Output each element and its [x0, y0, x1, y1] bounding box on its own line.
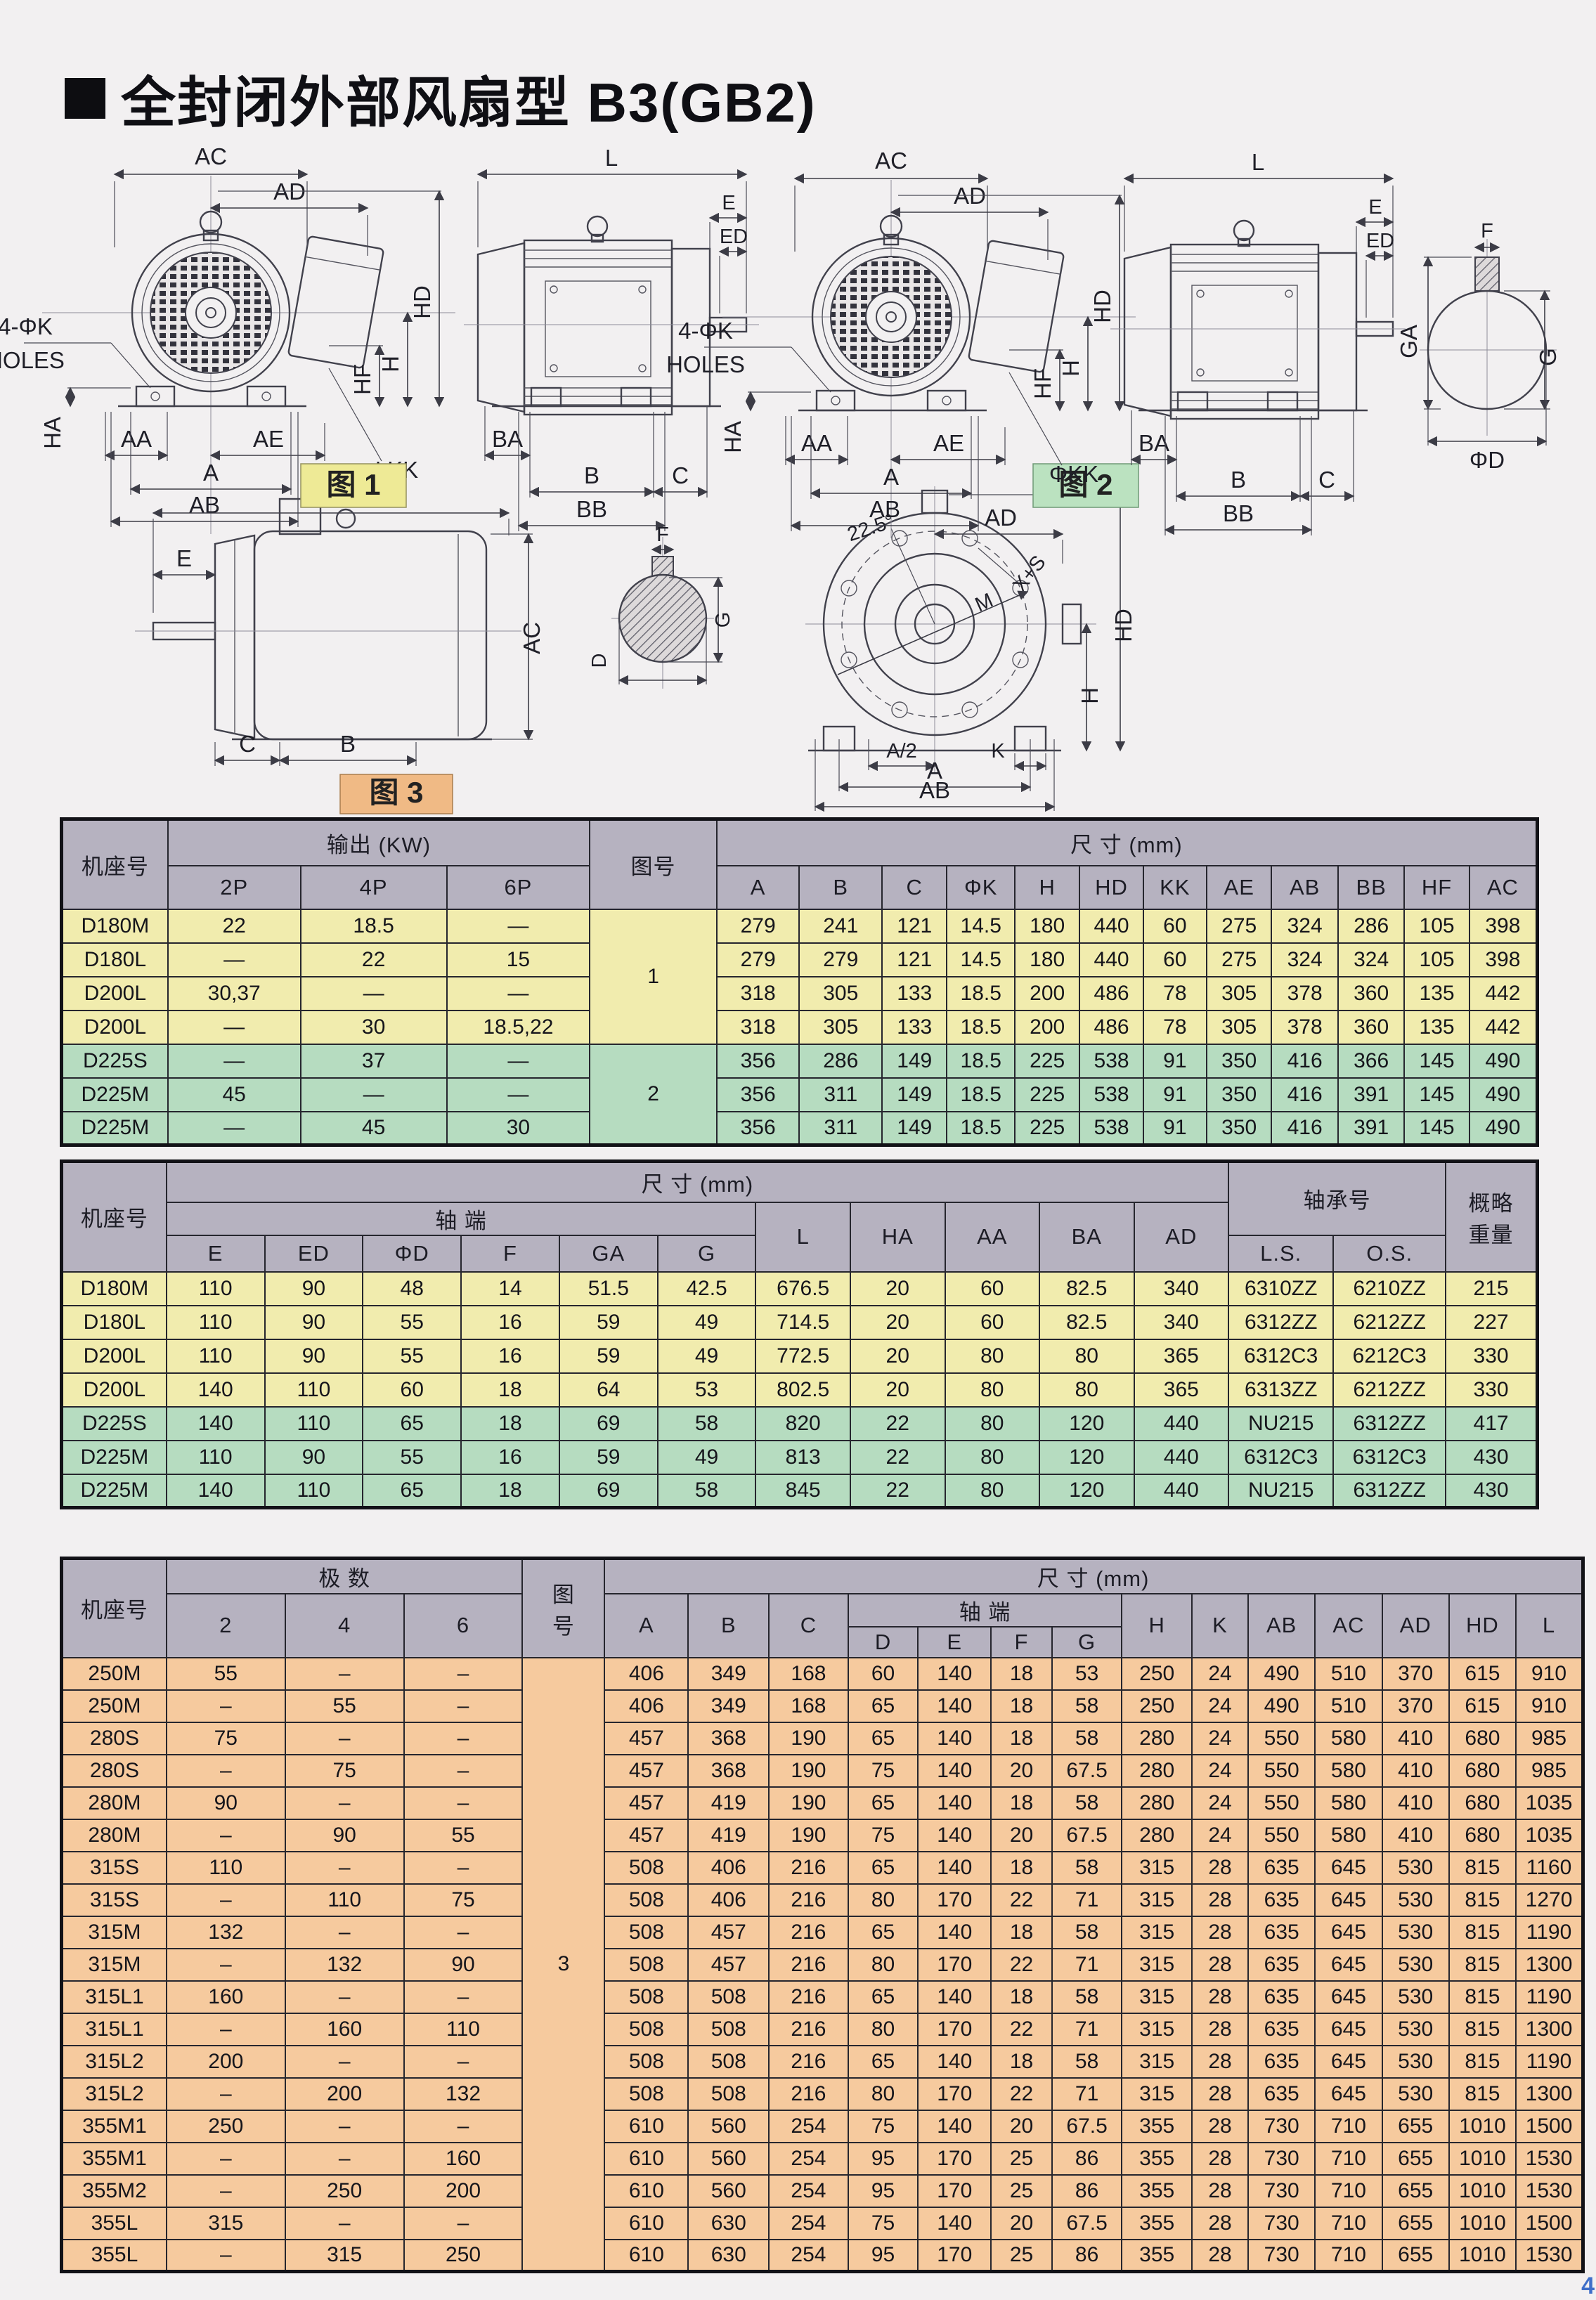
value-cell: 410: [1382, 1755, 1449, 1787]
table-row: 280S75––45736819065140185828024550580410…: [62, 1722, 1583, 1755]
model-cell: 280M: [62, 1819, 167, 1852]
dim-label: ΦD: [1470, 447, 1505, 473]
figure-3-key-detail: F G D: [588, 524, 734, 689]
value-cell: –: [404, 1722, 523, 1755]
dim-label: AC: [195, 143, 227, 169]
value-cell: 78: [1143, 1011, 1207, 1044]
table-row: D225M140110651869588452280120440NU215631…: [62, 1474, 1538, 1508]
value-cell: 457: [604, 1819, 688, 1852]
value-cell: 18.5: [301, 909, 447, 943]
value-cell: 280: [1122, 1755, 1192, 1787]
dim-label: HA: [720, 421, 746, 453]
dim-label: AA: [801, 430, 832, 456]
value-cell: 69: [559, 1407, 658, 1441]
drawing-primitive: [1285, 369, 1292, 376]
value-cell: 645: [1315, 2078, 1382, 2110]
value-cell: 286: [1338, 909, 1404, 943]
value-cell: 486: [1079, 977, 1143, 1011]
value-cell: 55: [404, 1819, 523, 1852]
value-cell: 121: [882, 909, 947, 943]
model-cell: 315L2: [62, 2078, 167, 2110]
value-cell: 60: [363, 1373, 461, 1407]
value-cell: 378: [1271, 977, 1337, 1011]
value-cell: 530: [1382, 1949, 1449, 1981]
value-cell: 350: [1207, 1112, 1271, 1145]
value-cell: 815: [1449, 1981, 1516, 2013]
table-row: 315L2–2001325085082168017022713152863564…: [62, 2078, 1583, 2110]
value-cell: 80: [848, 2078, 919, 2110]
value-cell: 550: [1248, 1819, 1315, 1852]
value-cell: 110: [285, 1884, 404, 1916]
value-cell: 121: [882, 943, 947, 977]
value-cell: –: [285, 1722, 404, 1755]
dim-label: HF: [349, 364, 375, 395]
value-cell: 508: [604, 1981, 688, 2013]
value-cell: 90: [265, 1272, 363, 1306]
drawing-primitive: [619, 575, 706, 662]
value-cell: 349: [688, 1658, 769, 1690]
value-cell: 406: [688, 1884, 769, 1916]
fan-cowl: [478, 243, 524, 412]
poles-dimensions-table: 机座号极 数图 号尺 寸 (mm)246ABC轴 端HKABACADHDLDEF…: [60, 1557, 1585, 2273]
value-cell: 1500: [1516, 2207, 1583, 2240]
value-cell: 580: [1315, 1755, 1382, 1787]
value-cell: 486: [1079, 1011, 1143, 1044]
value-cell: 22: [991, 2078, 1052, 2110]
model-cell: D225M: [62, 1112, 168, 1145]
value-cell: 440: [1079, 909, 1143, 943]
figure-2-front-view: AC AD HD H HF ΦKK 4-ΦK HOLES HA AA: [666, 148, 1136, 538]
value-cell: 190: [769, 1819, 848, 1852]
value-cell: 75: [848, 1819, 919, 1852]
value-cell: 315: [1122, 1916, 1192, 1949]
column-header: ΦK: [947, 866, 1015, 909]
value-cell: 180: [1015, 909, 1079, 943]
dim-label: ΦKK: [1049, 461, 1098, 487]
value-cell: 845: [755, 1474, 850, 1508]
value-cell: 20: [991, 2207, 1052, 2240]
column-header: AD: [1382, 1594, 1449, 1658]
value-cell: 80: [848, 1949, 919, 1981]
value-cell: 65: [363, 1407, 461, 1441]
value-cell: 28: [1192, 2046, 1248, 2078]
value-cell: –: [285, 2110, 404, 2143]
value-cell: 315: [1122, 1852, 1192, 1884]
column-header: O.S.: [1333, 1235, 1446, 1272]
value-cell: –: [404, 2110, 523, 2143]
value-cell: 58: [1052, 1981, 1122, 2013]
value-cell: –: [167, 2013, 285, 2046]
value-cell: 355: [1122, 2175, 1192, 2207]
table-row: 315M132––5084572166514018583152863564553…: [62, 1916, 1583, 1949]
value-cell: 1190: [1516, 2046, 1583, 2078]
dim-label: HD: [1110, 609, 1136, 642]
column-header: 图号: [590, 819, 717, 909]
model-cell: 315L1: [62, 2013, 167, 2046]
value-cell: 22: [991, 2013, 1052, 2046]
value-cell: 95: [848, 2143, 919, 2175]
value-cell: 65: [848, 1787, 919, 1819]
model-cell: 250M: [62, 1658, 167, 1690]
dim-label: A: [203, 460, 219, 486]
figure-1-caption: 图 1: [326, 468, 380, 501]
value-cell: 360: [1338, 1011, 1404, 1044]
value-cell: 55: [363, 1339, 461, 1373]
dim-label: K: [991, 740, 1005, 762]
value-cell: 490: [1248, 1690, 1315, 1722]
value-cell: 530: [1382, 1981, 1449, 2013]
value-cell: 417: [1446, 1407, 1537, 1441]
column-header: 尺 寸 (mm): [717, 819, 1538, 866]
value-cell: 105: [1404, 943, 1469, 977]
value-cell: 225: [1015, 1078, 1079, 1112]
value-cell: 1035: [1516, 1819, 1583, 1852]
eyebolt-icon: [1234, 221, 1254, 240]
column-header: E: [918, 1627, 991, 1658]
drawing-primitive: [1268, 392, 1297, 410]
value-cell: 55: [285, 1690, 404, 1722]
value-cell: 140: [918, 1658, 991, 1690]
table-row: D180M11090481451.542.5676.5206082.534063…: [62, 1272, 1538, 1306]
value-cell: 22: [850, 1474, 945, 1508]
value-cell: 802.5: [755, 1373, 850, 1407]
value-cell: 490: [1470, 1112, 1538, 1145]
foot-right: [247, 386, 285, 406]
value-cell: 120: [1039, 1474, 1134, 1508]
drawing-primitive: [545, 281, 651, 377]
value-cell: 815: [1449, 1949, 1516, 1981]
value-cell: 655: [1382, 2240, 1449, 2272]
value-cell: 80: [945, 1441, 1040, 1474]
value-cell: 30: [301, 1011, 447, 1044]
model-cell: D180M: [62, 909, 168, 943]
value-cell: –: [167, 1690, 285, 1722]
value-cell: 315: [1122, 1981, 1192, 2013]
dim-label: H: [377, 356, 403, 372]
dim-label: B: [584, 462, 599, 488]
column-header: 2P: [168, 866, 301, 909]
value-cell: 132: [404, 2078, 523, 2110]
value-cell: 200: [1015, 977, 1079, 1011]
value-cell: 457: [604, 1787, 688, 1819]
drawing-primitive: [831, 396, 840, 405]
value-cell: 772.5: [755, 1339, 850, 1373]
figure-number-cell: 3: [522, 1658, 604, 2272]
value-cell: 510: [1315, 1690, 1382, 1722]
shaft-end-bearing-table: 机座号尺 寸 (mm)轴承号概略 重量轴 端LHAAABAADEEDΦDFGAG…: [60, 1159, 1539, 1509]
dim-label: G: [712, 612, 734, 628]
value-cell: 279: [717, 943, 800, 977]
value-cell: 6312ZZ: [1333, 1407, 1446, 1441]
column-header: AC: [1470, 866, 1538, 909]
drawing-primitive: [306, 256, 380, 270]
shaft-end-detail: F GA G ΦD: [1396, 220, 1561, 473]
value-cell: 215: [1446, 1272, 1537, 1306]
column-header: L: [755, 1202, 850, 1272]
dim-label: E: [1368, 196, 1382, 219]
dim-label: AB: [869, 496, 900, 522]
value-cell: 22: [991, 1884, 1052, 1916]
value-cell: 49: [658, 1339, 756, 1373]
figure-3-badge: 图 3: [340, 774, 453, 814]
column-header: HA: [850, 1202, 945, 1272]
value-cell: 349: [688, 1690, 769, 1722]
column-header: B: [688, 1594, 769, 1658]
drawing-primitive: [531, 388, 561, 406]
column-header: HF: [1404, 866, 1469, 909]
value-cell: 315: [1122, 2046, 1192, 2078]
value-cell: 1530: [1516, 2175, 1583, 2207]
value-cell: 71: [1052, 1884, 1122, 1916]
value-cell: —: [447, 1044, 590, 1078]
value-cell: –: [404, 1658, 523, 1690]
value-cell: 180: [1015, 943, 1079, 977]
value-cell: 985: [1516, 1722, 1583, 1755]
table-row: D180M2218.5—127924112114.518044060275324…: [62, 909, 1538, 943]
value-cell: 110: [167, 1272, 265, 1306]
dim-label: E: [176, 545, 192, 571]
end-bracket: [1318, 253, 1356, 410]
value-cell: 65: [363, 1474, 461, 1508]
value-cell: 18.5,22: [447, 1011, 590, 1044]
value-cell: 80: [1039, 1339, 1134, 1373]
column-header: BB: [1338, 866, 1404, 909]
value-cell: 457: [604, 1722, 688, 1755]
model-cell: D200L: [62, 1373, 167, 1407]
column-header: 6: [404, 1594, 523, 1658]
value-cell: 168: [769, 1658, 848, 1690]
value-cell: 910: [1516, 1658, 1583, 1690]
value-cell: 350: [1207, 1044, 1271, 1078]
value-cell: –: [285, 1787, 404, 1819]
value-cell: —: [301, 977, 447, 1011]
dim-label: C: [1318, 467, 1335, 493]
value-cell: 28: [1192, 2078, 1248, 2110]
dim-label: C: [239, 731, 256, 757]
value-cell: 305: [1207, 977, 1271, 1011]
value-cell: 24: [1192, 1787, 1248, 1819]
model-cell: D200L: [62, 1339, 167, 1373]
value-cell: 22: [168, 909, 301, 943]
model-cell: 315S: [62, 1852, 167, 1884]
value-cell: 560: [688, 2110, 769, 2143]
value-cell: 140: [918, 2110, 991, 2143]
value-cell: 170: [918, 2240, 991, 2272]
value-cell: —: [168, 943, 301, 977]
value-cell: 149: [882, 1044, 947, 1078]
value-cell: 216: [769, 1884, 848, 1916]
value-cell: 560: [688, 2143, 769, 2175]
dim-label: ED: [720, 226, 748, 248]
model-cell: D200L: [62, 977, 168, 1011]
value-cell: 6212ZZ: [1333, 1306, 1446, 1339]
table-row: 315S110––5084062166514018583152863564553…: [62, 1852, 1583, 1884]
model-cell: D225S: [62, 1044, 168, 1078]
value-cell: 508: [604, 1916, 688, 1949]
value-cell: 635: [1248, 2046, 1315, 2078]
value-cell: 160: [404, 2143, 523, 2175]
value-cell: 406: [688, 1852, 769, 1884]
value-cell: 22: [850, 1407, 945, 1441]
value-cell: 530: [1382, 1916, 1449, 1949]
dim-label: AC: [875, 148, 907, 174]
value-cell: 508: [604, 1884, 688, 1916]
value-cell: –: [404, 1690, 523, 1722]
value-cell: —: [168, 1044, 301, 1078]
value-cell: 815: [1449, 1884, 1516, 1916]
page-number: 4: [1581, 2273, 1595, 2300]
value-cell: 315: [1122, 2013, 1192, 2046]
value-cell: 28: [1192, 2143, 1248, 2175]
motor-body: [254, 531, 486, 739]
value-cell: 442: [1470, 1011, 1538, 1044]
value-cell: 53: [658, 1373, 756, 1407]
value-cell: —: [447, 977, 590, 1011]
value-cell: 280: [1122, 1787, 1192, 1819]
column-header: AD: [1134, 1202, 1229, 1272]
value-cell: 200: [404, 2175, 523, 2207]
value-cell: 680: [1449, 1819, 1516, 1852]
value-cell: 18: [991, 1658, 1052, 1690]
value-cell: 160: [167, 1981, 285, 2013]
value-cell: 149: [882, 1112, 947, 1145]
value-cell: –: [404, 1787, 523, 1819]
value-cell: 140: [918, 1852, 991, 1884]
table-row: D180L—221527927912114.518044060275324324…: [62, 943, 1538, 977]
value-cell: 80: [1039, 1373, 1134, 1407]
value-cell: 20: [850, 1306, 945, 1339]
value-cell: 110: [167, 1441, 265, 1474]
value-cell: 30: [447, 1112, 590, 1145]
value-cell: 18: [461, 1407, 559, 1441]
drawing-primitive: [1197, 290, 1204, 297]
table-row: D200L—3018.5,2231830513318.5200486783053…: [62, 1011, 1538, 1044]
value-cell: 140: [167, 1373, 265, 1407]
table-row: 355L315––610630254751402067.535528730710…: [62, 2207, 1583, 2240]
value-cell: 530: [1382, 1852, 1449, 1884]
value-cell: 75: [167, 1722, 285, 1755]
value-cell: 18.5: [947, 1078, 1015, 1112]
value-cell: 324: [1271, 943, 1337, 977]
value-cell: 280: [1122, 1722, 1192, 1755]
value-cell: 80: [945, 1339, 1040, 1373]
value-cell: 67.5: [1052, 1755, 1122, 1787]
value-cell: 170: [918, 2143, 991, 2175]
table-row: D225S—37—235628614918.522553891350416366…: [62, 1044, 1538, 1078]
value-cell: 90: [167, 1787, 285, 1819]
value-cell: 610: [604, 2240, 688, 2272]
value-cell: 110: [167, 1852, 285, 1884]
value-cell: 149: [882, 1078, 947, 1112]
value-cell: 615: [1449, 1658, 1516, 1690]
dim-label: M: [972, 589, 997, 616]
value-cell: 324: [1271, 909, 1337, 943]
value-cell: 416: [1271, 1112, 1337, 1145]
holes-note: HOLES: [0, 347, 65, 373]
value-cell: 241: [799, 909, 882, 943]
drawing-primitive: [639, 365, 646, 372]
value-cell: 216: [769, 1981, 848, 2013]
value-cell: 370: [1382, 1658, 1449, 1690]
value-cell: 680: [1449, 1787, 1516, 1819]
value-cell: 140: [918, 1916, 991, 1949]
value-cell: 508: [688, 2078, 769, 2110]
value-cell: 398: [1470, 943, 1538, 977]
value-cell: 1530: [1516, 2143, 1583, 2175]
value-cell: 410: [1382, 1819, 1449, 1852]
column-header: F: [991, 1627, 1052, 1658]
value-cell: 120: [1039, 1441, 1134, 1474]
value-cell: 442: [1470, 977, 1538, 1011]
value-cell: 67.5: [1052, 1819, 1122, 1852]
value-cell: —: [168, 1112, 301, 1145]
value-cell: 275: [1207, 943, 1271, 977]
value-cell: 340: [1134, 1272, 1229, 1306]
value-cell: 615: [1449, 1690, 1516, 1722]
value-cell: 22: [301, 943, 447, 977]
value-cell: 406: [604, 1690, 688, 1722]
value-cell: 610: [604, 2207, 688, 2240]
catalog-page: 全封闭外部风扇型 B3(GB2): [0, 0, 1596, 2300]
value-cell: 140: [918, 1981, 991, 2013]
value-cell: 14.5: [947, 943, 1015, 977]
value-cell: 508: [688, 1981, 769, 2013]
value-cell: 227: [1446, 1306, 1537, 1339]
value-cell: 60: [1143, 909, 1207, 943]
table-row: 280M–9055457419190751402067.528024550580…: [62, 1819, 1583, 1852]
dim-label: BB: [576, 496, 607, 522]
value-cell: 530: [1382, 1884, 1449, 1916]
value-cell: –: [167, 1884, 285, 1916]
value-cell: 355: [1122, 2207, 1192, 2240]
table-row: D225S140110651869588202280120440NU215631…: [62, 1407, 1538, 1441]
value-cell: 1270: [1516, 1884, 1583, 1916]
value-cell: 58: [658, 1407, 756, 1441]
value-cell: 419: [688, 1819, 769, 1852]
value-cell: 18: [461, 1373, 559, 1407]
column-header: E: [167, 1235, 265, 1272]
dim-label: L: [1252, 149, 1264, 175]
value-cell: 58: [1052, 1722, 1122, 1755]
value-cell: 410: [1382, 1722, 1449, 1755]
dim-label: G: [1535, 348, 1561, 366]
value-cell: –: [285, 1658, 404, 1690]
value-cell: 190: [769, 1787, 848, 1819]
value-cell: 378: [1271, 1011, 1337, 1044]
value-cell: 366: [1338, 1044, 1404, 1078]
value-cell: 14.5: [947, 909, 1015, 943]
value-cell: 676.5: [755, 1272, 850, 1306]
foot-left: [136, 386, 174, 406]
value-cell: 71: [1052, 1949, 1122, 1981]
value-cell: 110: [265, 1373, 363, 1407]
value-cell: 67.5: [1052, 2207, 1122, 2240]
value-cell: 65: [848, 1916, 919, 1949]
value-cell: –: [404, 2046, 523, 2078]
value-cell: 145: [1404, 1044, 1469, 1078]
value-cell: 6212ZZ: [1333, 1373, 1446, 1407]
value-cell: 190: [769, 1722, 848, 1755]
table-row: D180L1109055165949714.5206082.53406312ZZ…: [62, 1306, 1538, 1339]
table-row: 315S–11075508406216801702271315286356455…: [62, 1884, 1583, 1916]
value-cell: 635: [1248, 1981, 1315, 2013]
value-cell: 58: [1052, 1787, 1122, 1819]
model-cell: 280M: [62, 1787, 167, 1819]
value-cell: 18: [991, 1787, 1052, 1819]
fan-cowl: [1124, 247, 1171, 416]
value-cell: 65: [848, 2046, 919, 2078]
drawing-primitive: [791, 347, 831, 392]
